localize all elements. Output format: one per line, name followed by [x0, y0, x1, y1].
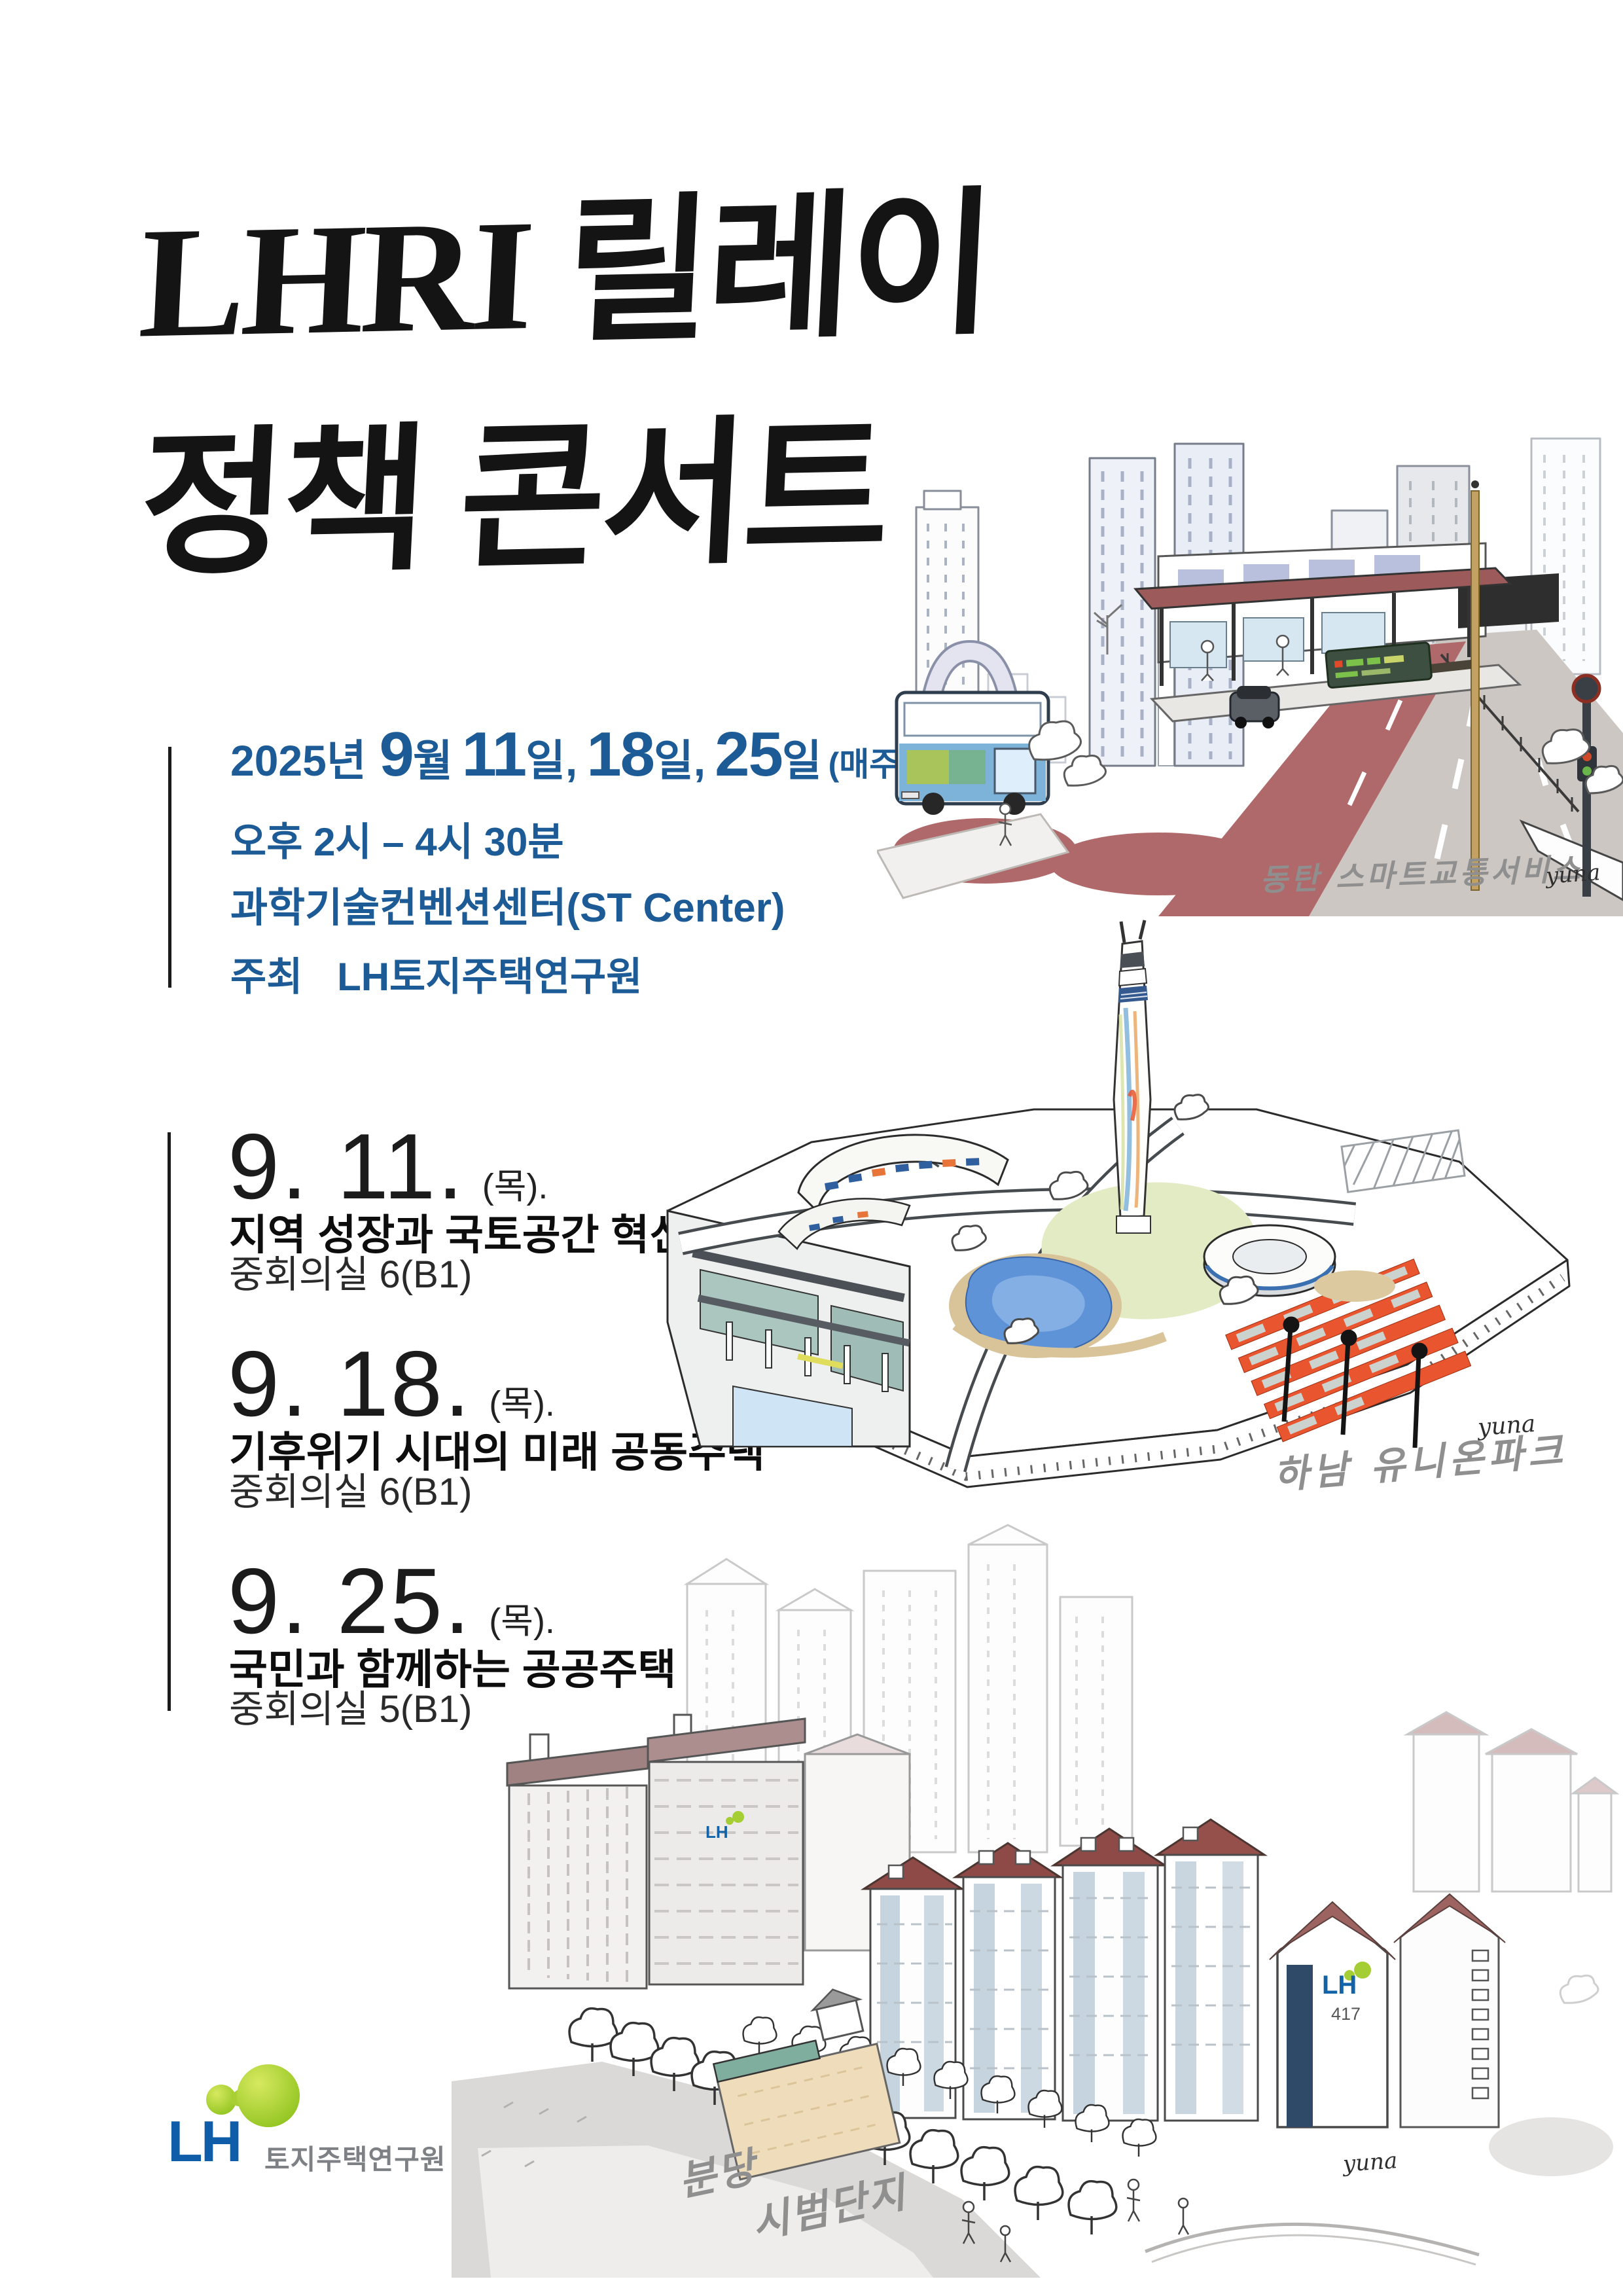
- event-month-num: 9: [380, 719, 413, 791]
- lh-building-number: 417: [1331, 2004, 1361, 2024]
- navy-panel: [1287, 1965, 1313, 2127]
- session-1-room: 중회의실 6(B1): [229, 1244, 472, 1299]
- sidewalk-person: [877, 804, 1068, 898]
- car: [1230, 686, 1279, 728]
- bundang-illustration: LH: [452, 1518, 1623, 2278]
- event-day-2-num: 18: [586, 719, 654, 791]
- event-month-suffix: 월: [413, 726, 453, 789]
- poster-title-line1: LHRI 릴레이: [136, 186, 995, 362]
- lh-building-label: LH: [1322, 1971, 1357, 2000]
- host-label: 주최: [230, 955, 302, 999]
- round-sign: [1573, 675, 1599, 702]
- sand-area: [1314, 1270, 1395, 1302]
- event-day-3-num: 25: [715, 719, 782, 791]
- dongtan-signature: yuna: [1545, 859, 1601, 889]
- hanam-signature: yuna: [1477, 1410, 1537, 1441]
- poster-title-line2: 정책 콘서트: [136, 412, 889, 586]
- schedule-vertical-rule: [168, 1132, 171, 1711]
- session-3-room: 중회의실 5(B1): [229, 1678, 472, 1733]
- lh-logo-letters: LH: [168, 2113, 240, 2170]
- lh-org-name: 토지주택연구원: [264, 2138, 446, 2178]
- session-3-date-num: 9. 25.: [228, 1555, 472, 1648]
- event-day-3: 25 일: [715, 719, 822, 791]
- event-day-1-num: 11: [462, 719, 526, 791]
- event-time: 오후 2시 – 4시 30분: [230, 810, 564, 867]
- session-1-date: 9. 11. (목).: [228, 1121, 548, 1213]
- dongtan-illustration: [877, 393, 1623, 916]
- session-1-date-num: 9. 11.: [228, 1121, 465, 1213]
- session-2-room: 중회의실 6(B1): [229, 1461, 472, 1516]
- gantry-pole: [1471, 491, 1479, 890]
- info-vertical-rule: [168, 747, 171, 988]
- event-day-1-suffix: 일,: [526, 726, 577, 789]
- event-day-2-suffix: 일,: [654, 726, 705, 789]
- bus-rear-window: [995, 749, 1035, 793]
- double-decker-bus: [897, 692, 1048, 815]
- main-apartments: [864, 1820, 1264, 2121]
- hanam-illustration: [602, 903, 1623, 1518]
- union-tower: [1114, 920, 1150, 1233]
- apartment-block: [1054, 1829, 1165, 2121]
- poster: LHRI 릴레이 정책 콘서트 2025년 9 월 11 일, 18 일, 25…: [0, 0, 1623, 2296]
- lh-building: LH 417: [1270, 1894, 1505, 2127]
- bg-right-cluster: [1407, 1712, 1616, 1892]
- host-name: LH토지주택연구원: [337, 955, 642, 999]
- event-year: 2025년: [230, 726, 366, 789]
- left-building-lh-label: LH: [705, 1822, 728, 1842]
- bus-plate: [902, 792, 919, 798]
- tower-base: [1116, 1216, 1150, 1233]
- led-sign: [1326, 642, 1432, 688]
- apartment-block: [1157, 1820, 1264, 2121]
- bus-wheel: [922, 793, 944, 815]
- lh-institute-logo: LH 토지주택연구원: [165, 2062, 466, 2176]
- session-2-date-num: 9. 18.: [228, 1338, 472, 1431]
- session-2-date: 9. 18. (목).: [228, 1338, 555, 1431]
- event-host-line: 주최 LH토지주택연구원: [230, 945, 642, 1002]
- event-day-3-suffix: 일: [782, 726, 822, 789]
- bundang-signature: yuna: [1342, 2147, 1399, 2178]
- event-day-1: 11 일,: [462, 719, 578, 791]
- event-day-2: 18 일,: [586, 719, 705, 791]
